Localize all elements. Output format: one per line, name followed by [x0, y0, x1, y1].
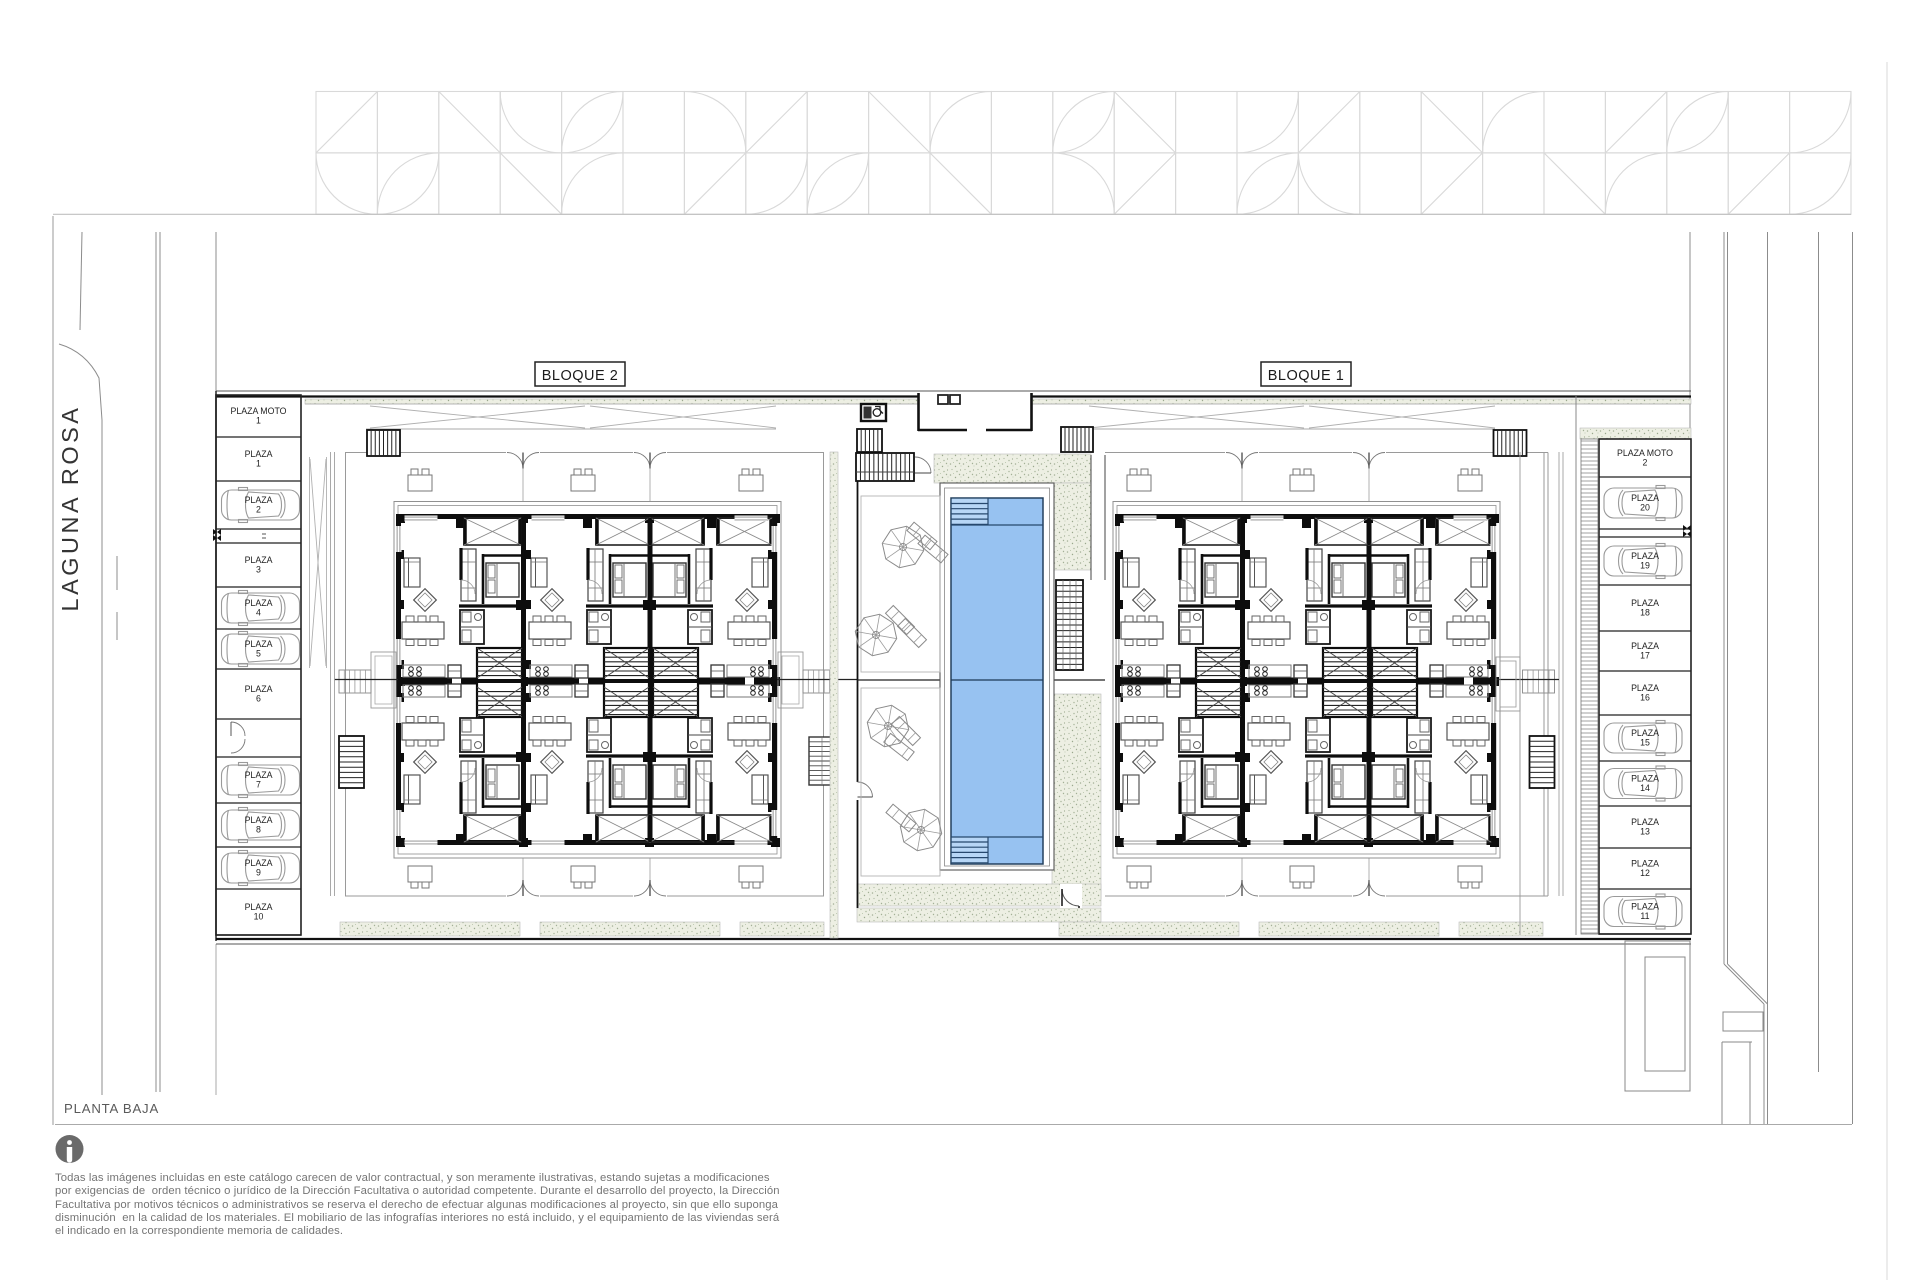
- svg-text:PLAZA: PLAZA: [1631, 683, 1659, 693]
- svg-text:2: 2: [256, 505, 261, 515]
- svg-text:PLAZA: PLAZA: [1631, 817, 1659, 827]
- svg-text:15: 15: [1640, 738, 1650, 748]
- svg-text:PLAZA: PLAZA: [1631, 493, 1659, 503]
- svg-text:PLANTA BAJA: PLANTA BAJA: [64, 1101, 159, 1116]
- svg-text:5: 5: [256, 649, 261, 659]
- svg-text:PLAZA: PLAZA: [1631, 641, 1659, 651]
- svg-text:8: 8: [256, 825, 261, 835]
- svg-text:4: 4: [256, 608, 261, 618]
- svg-text:18: 18: [1640, 608, 1650, 618]
- svg-text:LAGUNA ROSA: LAGUNA ROSA: [57, 405, 83, 612]
- svg-text:19: 19: [1640, 561, 1650, 571]
- svg-text:PLAZA: PLAZA: [1631, 774, 1659, 784]
- svg-text:PLAZA: PLAZA: [245, 449, 273, 459]
- svg-text:13: 13: [1640, 827, 1650, 837]
- svg-text:PLAZA MOTO: PLAZA MOTO: [1617, 448, 1673, 458]
- svg-text:14: 14: [1640, 783, 1650, 793]
- svg-text:PLAZA: PLAZA: [245, 902, 273, 912]
- svg-text:PLAZA: PLAZA: [245, 598, 273, 608]
- svg-text:PLAZA: PLAZA: [245, 815, 273, 825]
- svg-text:BLOQUE 1: BLOQUE 1: [1268, 368, 1345, 384]
- svg-text:12: 12: [1640, 868, 1650, 878]
- svg-text:PLAZA: PLAZA: [1631, 859, 1659, 869]
- svg-text:6: 6: [256, 694, 261, 704]
- svg-text:PLAZA: PLAZA: [245, 639, 273, 649]
- svg-text:PLAZA: PLAZA: [1631, 728, 1659, 738]
- svg-text:1: 1: [256, 416, 261, 426]
- svg-text:PLAZA: PLAZA: [245, 555, 273, 565]
- svg-text:10: 10: [254, 912, 264, 922]
- svg-text:7: 7: [256, 780, 261, 790]
- svg-text:11: 11: [1640, 911, 1649, 921]
- svg-text:2: 2: [1643, 458, 1648, 468]
- svg-text:PLAZA: PLAZA: [245, 684, 273, 694]
- svg-text:PLAZA MOTO: PLAZA MOTO: [230, 406, 286, 416]
- svg-text:17: 17: [1640, 651, 1650, 661]
- svg-text:BLOQUE 2: BLOQUE 2: [542, 368, 619, 384]
- svg-text:1: 1: [256, 459, 261, 469]
- svg-text:20: 20: [1640, 503, 1650, 513]
- svg-text:3: 3: [256, 565, 261, 575]
- svg-text:PLAZA: PLAZA: [245, 495, 273, 505]
- svg-text:9: 9: [256, 868, 261, 878]
- svg-text:PLAZA: PLAZA: [1631, 551, 1659, 561]
- svg-text:PLAZA: PLAZA: [1631, 598, 1659, 608]
- svg-text:PLAZA: PLAZA: [245, 770, 273, 780]
- svg-text:PLAZA: PLAZA: [245, 858, 273, 868]
- svg-text:16: 16: [1640, 693, 1650, 703]
- svg-text:PLAZA: PLAZA: [1631, 902, 1659, 912]
